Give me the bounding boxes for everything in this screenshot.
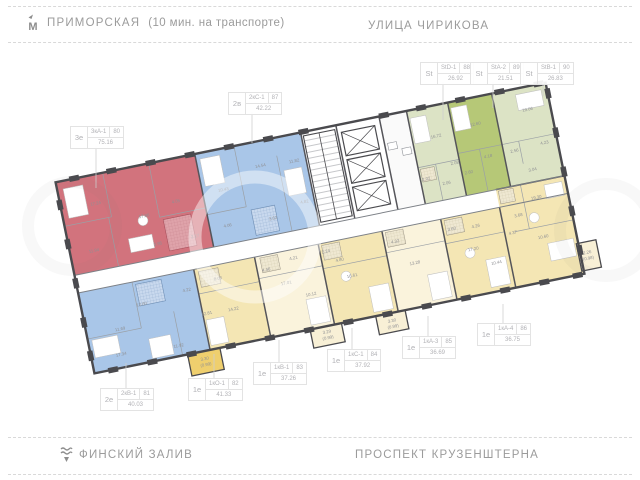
callout-type: 1е [402,336,420,359]
callout-type: 1е [477,323,495,346]
apartment-callout-1e85[interactable]: 1е1кА-38536.69 [402,336,456,359]
apartment-callout-st1[interactable]: StStD-18826.92 [420,62,474,85]
callout-type: St [420,62,438,85]
apartment-callout-1e84[interactable]: 1е1кС-18437.92 [327,349,381,372]
callout-flat-number: 81 [139,389,153,399]
callout-layout-code: 2кВ-1 [118,389,139,399]
apartment-callout-1e82[interactable]: 1е1кО-18241.33 [188,378,243,401]
callout-layout-code: StD-1 [438,63,459,73]
callout-area-m2: 37.92 [345,361,381,372]
callout-type: 1е [327,349,345,372]
floorplan-page: { "streets": { "top_left": {"name": "ПРИ… [0,0,640,480]
callout-area-m2: 36.69 [420,348,456,359]
callout-layout-code: StA-2 [488,63,509,73]
callout-area-m2: 41.33 [206,390,243,401]
apartment-callout-st2[interactable]: StStA-28921.51 [470,62,524,85]
callout-area-m2: 26.83 [538,74,574,85]
callout-layout-code: 1кО-1 [206,379,228,389]
callout-layout-code: 1кВ-1 [271,363,292,373]
callout-type: 2в [228,92,246,115]
callout-layout-code: 2кС-1 [246,93,268,103]
callout-type: St [470,62,488,85]
callout-flat-number: 90 [559,63,573,73]
callout-flat-number: 80 [109,127,123,137]
apartment-callout-2e[interactable]: 2е2кВ-18140.03 [100,388,154,411]
building-plan: 17.2417.8611.944.053.952.1710.4314.5411.… [52,76,606,395]
callout-type: 1е [253,362,271,385]
apartment-callout-1e83[interactable]: 1е1кВ-18337.26 [253,362,307,385]
apartment-callout-3e[interactable]: 3е3кА-18075.16 [70,126,124,149]
callout-flat-number: 84 [367,350,381,360]
apartment-callout-st3[interactable]: StStB-19026.83 [520,62,574,85]
callout-type: 2е [100,388,118,411]
callout-layout-code: 1кА-3 [420,337,441,347]
callout-area-m2: 36.75 [495,335,531,346]
callout-flat-number: 87 [268,93,282,103]
callout-area-m2: 42.22 [246,104,282,115]
callout-flat-number: 86 [516,324,530,334]
callout-type: St [520,62,538,85]
callout-area-m2: 75.16 [88,138,124,149]
callout-area-m2: 26.92 [438,74,474,85]
callout-flat-number: 83 [292,363,306,373]
callout-flat-number: 82 [228,379,242,389]
callout-type: 3е [70,126,88,149]
apartment-callout-2v[interactable]: 2в2кС-18742.22 [228,92,282,115]
callout-type: 1е [188,378,206,401]
callout-area-m2: 40.03 [118,400,154,411]
apartment-callout-1e86[interactable]: 1е1кА-48636.75 [477,323,531,346]
callout-area-m2: 37.26 [271,374,307,385]
callout-area-m2: 21.51 [488,74,524,85]
callout-layout-code: 3кА-1 [88,127,109,137]
callout-layout-code: StB-1 [538,63,559,73]
callout-flat-number: 85 [441,337,455,347]
callout-layout-code: 1кА-4 [495,324,516,334]
callout-layout-code: 1кС-1 [345,350,367,360]
